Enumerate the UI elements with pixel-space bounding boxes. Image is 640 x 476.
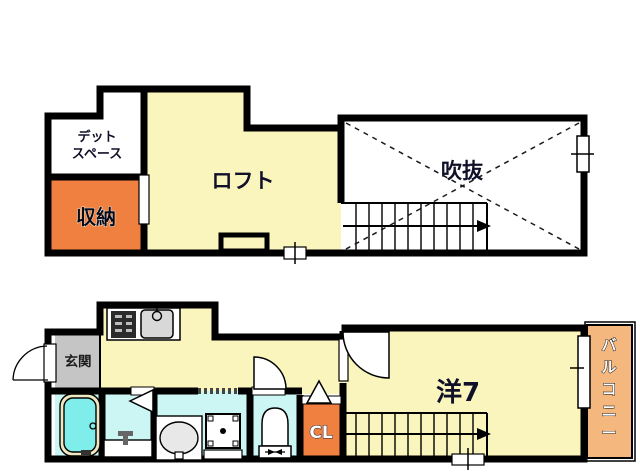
upper-staircase bbox=[341, 203, 491, 250]
balcony-label: バ ル コ ニ ー bbox=[601, 336, 616, 442]
lower-floor-plan: 玄関 洋7 CL バ ル コ ニ ー bbox=[13, 305, 635, 470]
kitchen-sink-icon bbox=[141, 308, 173, 338]
toilet-icon bbox=[259, 408, 291, 458]
svg-text:ニ: ニ bbox=[601, 402, 616, 420]
bathtub-icon bbox=[60, 394, 100, 456]
washing-machine-icon bbox=[204, 414, 242, 459]
western-room-label: 洋7 bbox=[436, 377, 480, 408]
loft-label: ロフト bbox=[212, 169, 275, 193]
entrance-door-swing-icon bbox=[13, 346, 48, 380]
floor-plan-canvas: デット スペース 収納 ロフト 吹抜 bbox=[0, 0, 640, 476]
upper-floor-plan: デット スペース 収納 ロフト 吹抜 bbox=[48, 89, 594, 264]
entrance-door-opening bbox=[44, 344, 56, 382]
dead-space-label-line1: デット bbox=[77, 129, 116, 145]
svg-text:ー: ー bbox=[601, 424, 616, 442]
entrance-label: 玄関 bbox=[65, 353, 92, 370]
storage-label: 収納 bbox=[76, 205, 116, 229]
kitchen-counter bbox=[107, 308, 180, 340]
svg-text:コ: コ bbox=[601, 380, 616, 398]
storage-opening bbox=[139, 175, 149, 224]
loft-ledge-icon bbox=[221, 235, 267, 251]
laundry-pan-icon bbox=[156, 416, 202, 460]
svg-text:ル: ル bbox=[601, 358, 616, 376]
dead-space-label-line2: スペース bbox=[72, 147, 122, 162]
floor-plan-page: デット スペース 収納 ロフト 吹抜 bbox=[0, 0, 640, 476]
svg-text:バ: バ bbox=[601, 336, 616, 354]
stove-icon bbox=[111, 311, 136, 338]
closet-label: CL bbox=[309, 423, 332, 443]
void-label: 吹抜 bbox=[441, 159, 484, 183]
